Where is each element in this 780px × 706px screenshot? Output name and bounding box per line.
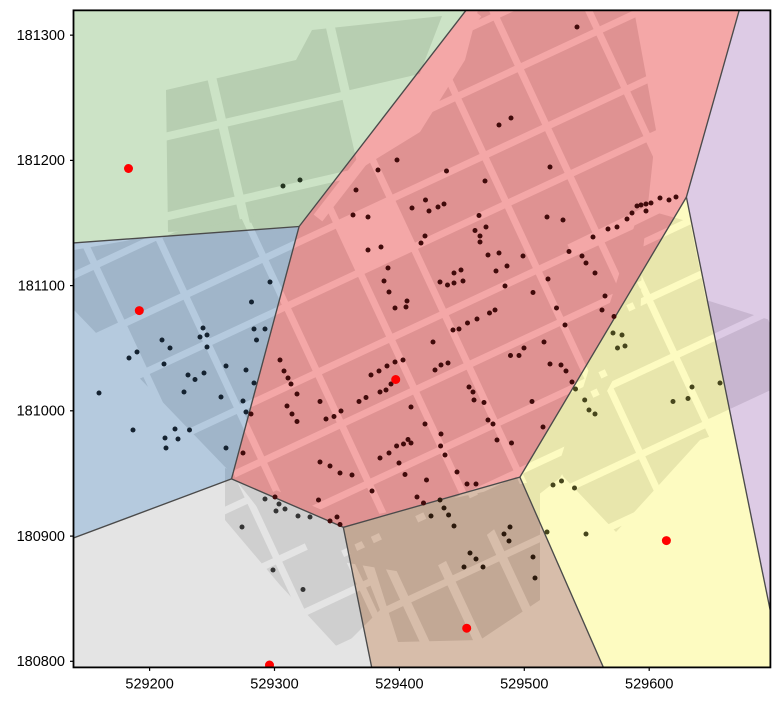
svg-text:181300: 181300 xyxy=(17,28,65,44)
svg-text:180900: 180900 xyxy=(17,529,65,545)
svg-text:180800: 180800 xyxy=(17,654,65,670)
svg-text:529300: 529300 xyxy=(250,676,298,692)
svg-text:529500: 529500 xyxy=(500,676,548,692)
svg-text:181000: 181000 xyxy=(17,404,65,420)
svg-text:181200: 181200 xyxy=(17,153,65,169)
svg-text:529200: 529200 xyxy=(125,676,173,692)
svg-text:529600: 529600 xyxy=(625,676,673,692)
svg-text:181100: 181100 xyxy=(18,278,65,294)
svg-text:529400: 529400 xyxy=(375,676,423,692)
